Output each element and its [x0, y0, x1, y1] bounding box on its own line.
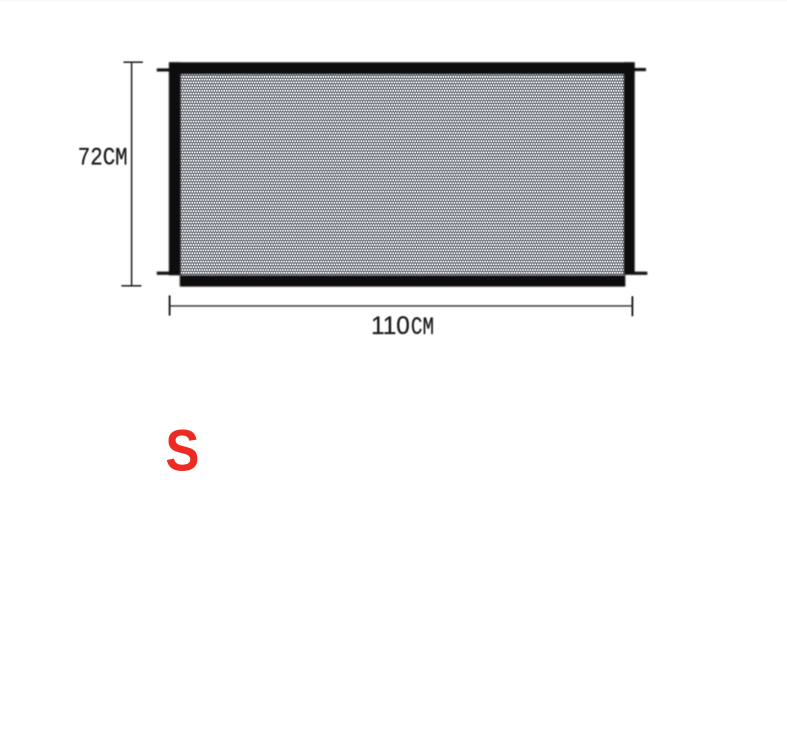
svg-text:72CM: 72CM	[78, 145, 128, 173]
svg-text:CM: CM	[411, 314, 434, 342]
svg-text:110: 110	[371, 313, 410, 340]
svg-text:S: S	[165, 419, 199, 484]
